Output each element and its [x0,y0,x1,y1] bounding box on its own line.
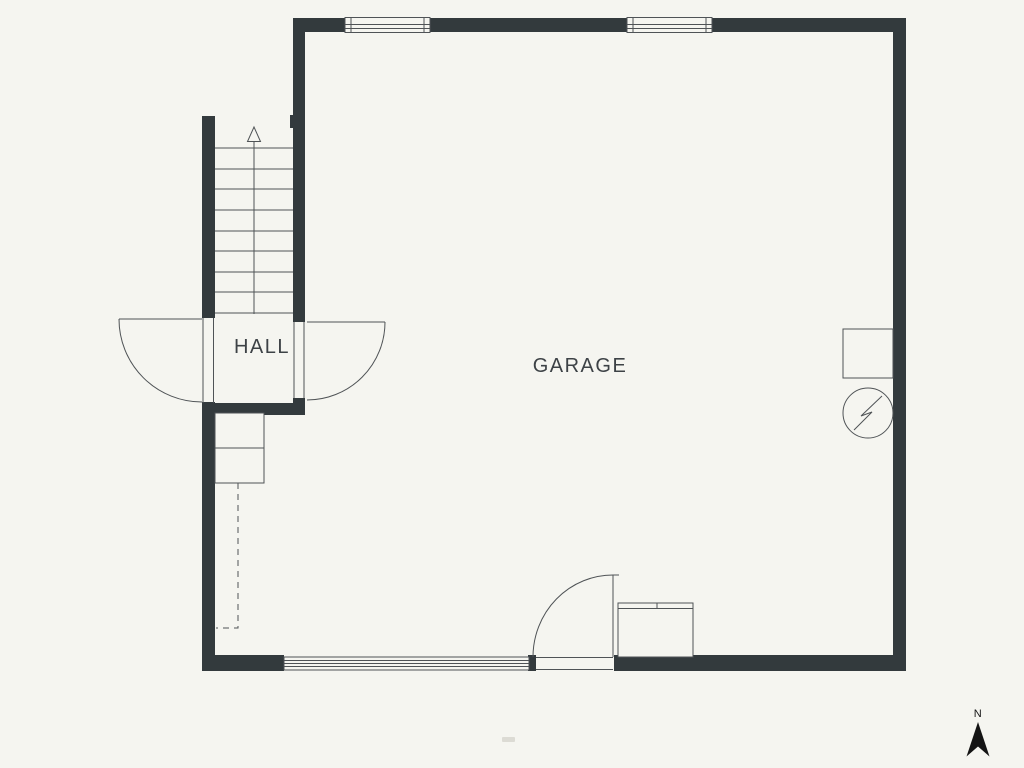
floor-plan-page: HALL GARAGE N [0,0,1024,768]
garage-label: GARAGE [533,355,628,377]
wall-right [893,18,906,671]
wall-stair-right [293,18,305,322]
garage-door-icon [284,657,529,670]
floor-plan: HALL GARAGE N [0,0,1024,768]
window-icon-2 [627,18,712,33]
hall-label: HALL [234,336,290,358]
storage-box [215,448,264,483]
north-label: N [974,708,982,720]
watermark-mark [502,737,515,742]
storage-box [215,413,264,448]
wall-hall-right-jamb [293,398,305,415]
meter-box [843,329,893,378]
wall-bottom-left [202,655,284,671]
counter-unit [618,603,693,657]
wall-garage-left [202,402,215,655]
wall-stair-left [202,116,215,318]
page-background [0,0,1024,768]
window-icon-1 [345,18,430,33]
wall-stair-right-notch [290,115,293,128]
counter-outline [618,603,693,657]
